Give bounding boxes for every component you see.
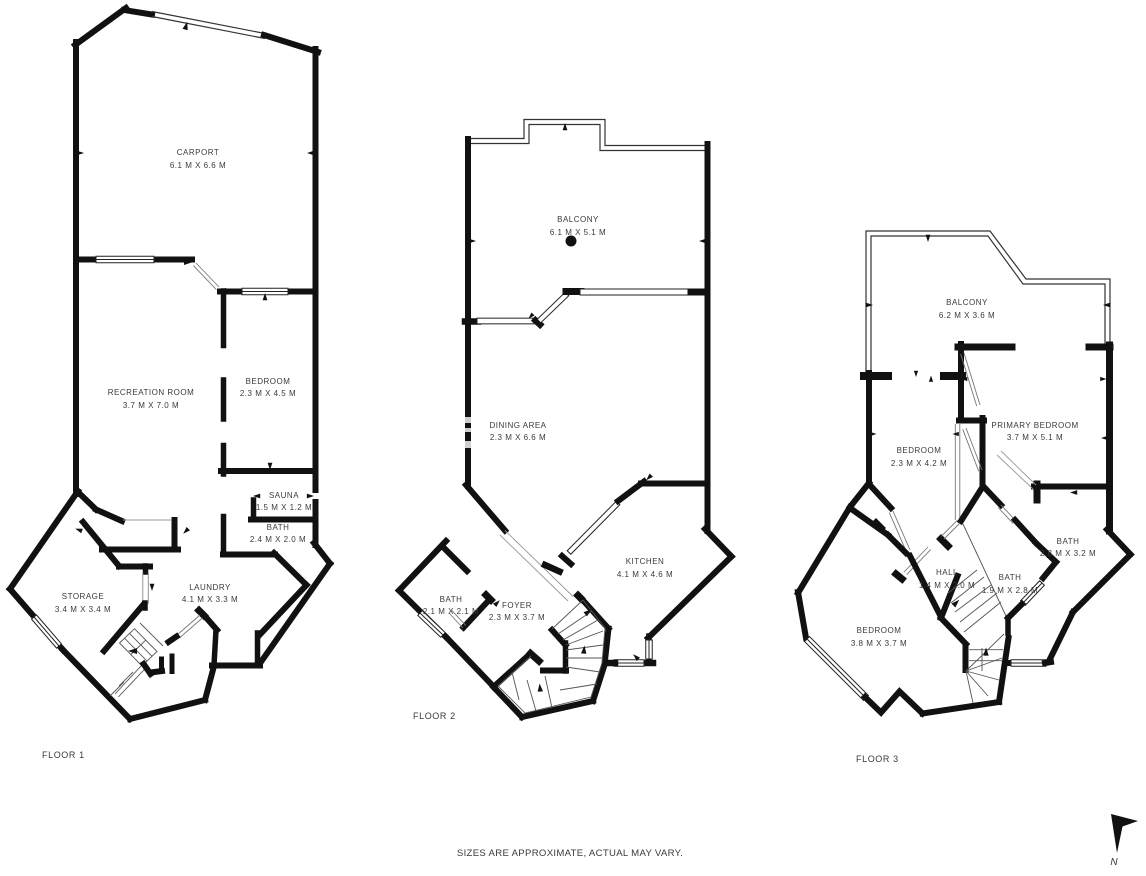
svg-text:SIZES ARE APPROXIMATE, ACTUAL: SIZES ARE APPROXIMATE, ACTUAL MAY VARY. (457, 848, 683, 859)
svg-text:3.8 M X 3.7 M: 3.8 M X 3.7 M (851, 639, 907, 648)
svg-text:BATH: BATH (440, 595, 463, 604)
svg-text:3.7 M X 5.1 M: 3.7 M X 5.1 M (1007, 433, 1063, 442)
svg-text:2.1 M X 2.1 M: 2.1 M X 2.1 M (423, 607, 479, 616)
svg-text:6.1 M X 5.1 M: 6.1 M X 5.1 M (550, 228, 606, 237)
svg-text:BEDROOM: BEDROOM (246, 377, 291, 386)
svg-text:SAUNA: SAUNA (269, 491, 299, 500)
svg-text:2.3 M X 4.5 M: 2.3 M X 4.5 M (240, 389, 296, 398)
svg-text:FOYER: FOYER (502, 601, 532, 610)
svg-text:2.3 M X 4.2 M: 2.3 M X 4.2 M (891, 459, 947, 468)
svg-text:N: N (1110, 857, 1118, 868)
svg-text:LAUNDRY: LAUNDRY (189, 583, 231, 592)
svg-text:6.1 M X 6.6 M: 6.1 M X 6.6 M (170, 161, 226, 170)
svg-text:BATH: BATH (999, 573, 1022, 582)
svg-text:BATH: BATH (267, 523, 290, 532)
svg-text:BALCONY: BALCONY (946, 298, 988, 307)
svg-text:FLOOR 2: FLOOR 2 (413, 711, 456, 721)
svg-text:4.1 M X 3.3 M: 4.1 M X 3.3 M (182, 595, 238, 604)
svg-text:RECREATION ROOM: RECREATION ROOM (108, 388, 194, 397)
svg-text:BEDROOM: BEDROOM (897, 446, 942, 455)
svg-text:BATH: BATH (1057, 537, 1080, 546)
svg-text:4.1 M X 4.6 M: 4.1 M X 4.6 M (617, 570, 673, 579)
svg-text:FLOOR 1: FLOOR 1 (42, 750, 85, 760)
svg-text:PRIMARY BEDROOM: PRIMARY BEDROOM (991, 421, 1078, 430)
svg-text:BEDROOM: BEDROOM (857, 626, 902, 635)
svg-text:1.9 M X 2.8 M: 1.9 M X 2.8 M (982, 586, 1038, 595)
svg-text:3.7 M X 7.0 M: 3.7 M X 7.0 M (123, 401, 179, 410)
svg-text:2.8 M X 3.2 M: 2.8 M X 3.2 M (1040, 549, 1096, 558)
svg-text:KITCHEN: KITCHEN (626, 557, 665, 566)
svg-text:DINING AREA: DINING AREA (489, 421, 546, 430)
svg-text:CARPORT: CARPORT (177, 148, 219, 157)
svg-text:6.2 M X 3.6 M: 6.2 M X 3.6 M (939, 311, 995, 320)
svg-text:HALL: HALL (936, 568, 958, 577)
svg-text:2.3 M X 6.6 M: 2.3 M X 6.6 M (490, 433, 546, 442)
svg-text:STORAGE: STORAGE (62, 592, 104, 601)
svg-text:BALCONY: BALCONY (557, 215, 599, 224)
svg-text:FLOOR 3: FLOOR 3 (856, 754, 899, 764)
svg-text:1.5 M X 1.2 M: 1.5 M X 1.2 M (256, 503, 312, 512)
svg-text:1.4 M X 2.0 M: 1.4 M X 2.0 M (919, 581, 975, 590)
svg-text:2.4 M X 2.0 M: 2.4 M X 2.0 M (250, 535, 306, 544)
svg-text:2.3 M X 3.7 M: 2.3 M X 3.7 M (489, 613, 545, 622)
svg-text:3.4 M X 3.4 M: 3.4 M X 3.4 M (55, 605, 111, 614)
